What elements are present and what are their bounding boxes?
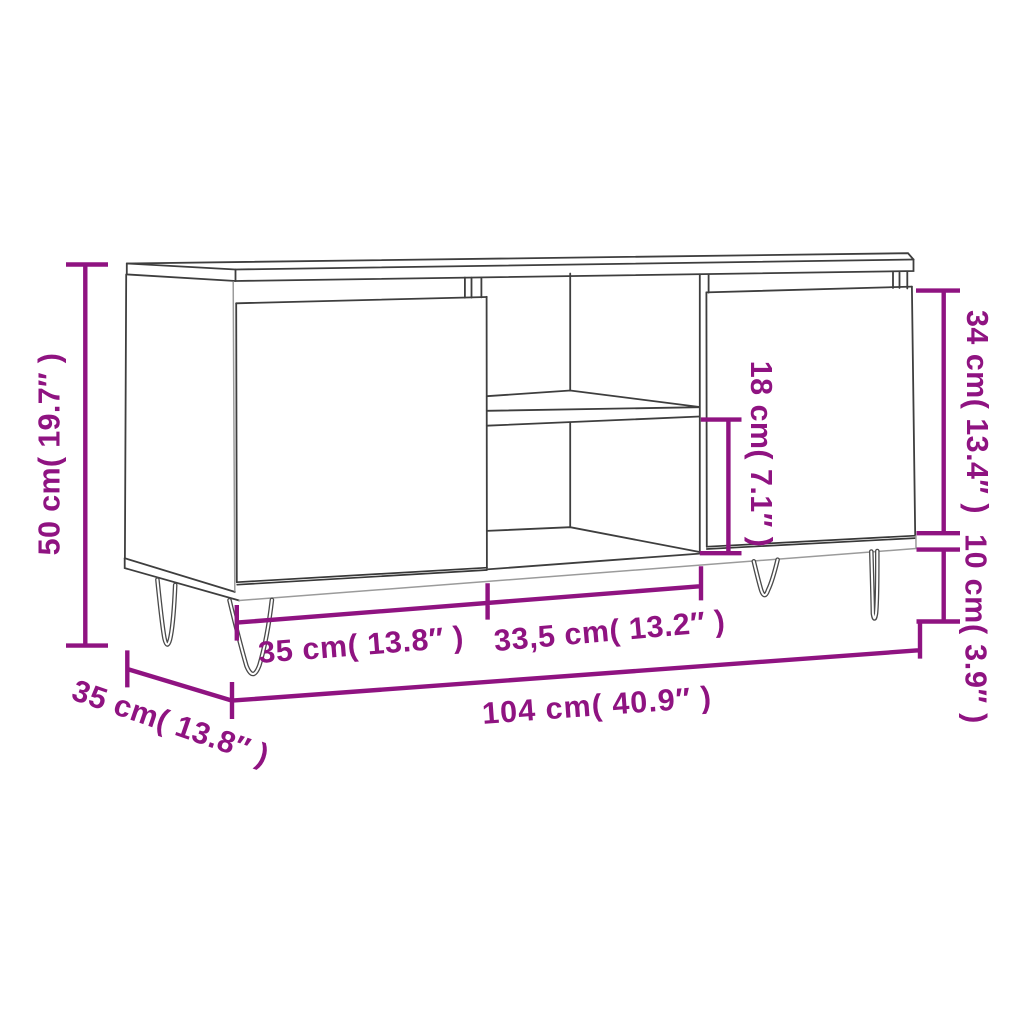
svg-text:50 cm( 19.7″ ): 50 cm( 19.7″ )	[33, 353, 67, 556]
svg-text:10 cm( 3.9″ ): 10 cm( 3.9″ )	[959, 534, 993, 724]
svg-text:18 cm( 7.1″ ): 18 cm( 7.1″ )	[744, 361, 778, 548]
svg-text:34 cm( 13.4″ ): 34 cm( 13.4″ )	[960, 310, 994, 514]
